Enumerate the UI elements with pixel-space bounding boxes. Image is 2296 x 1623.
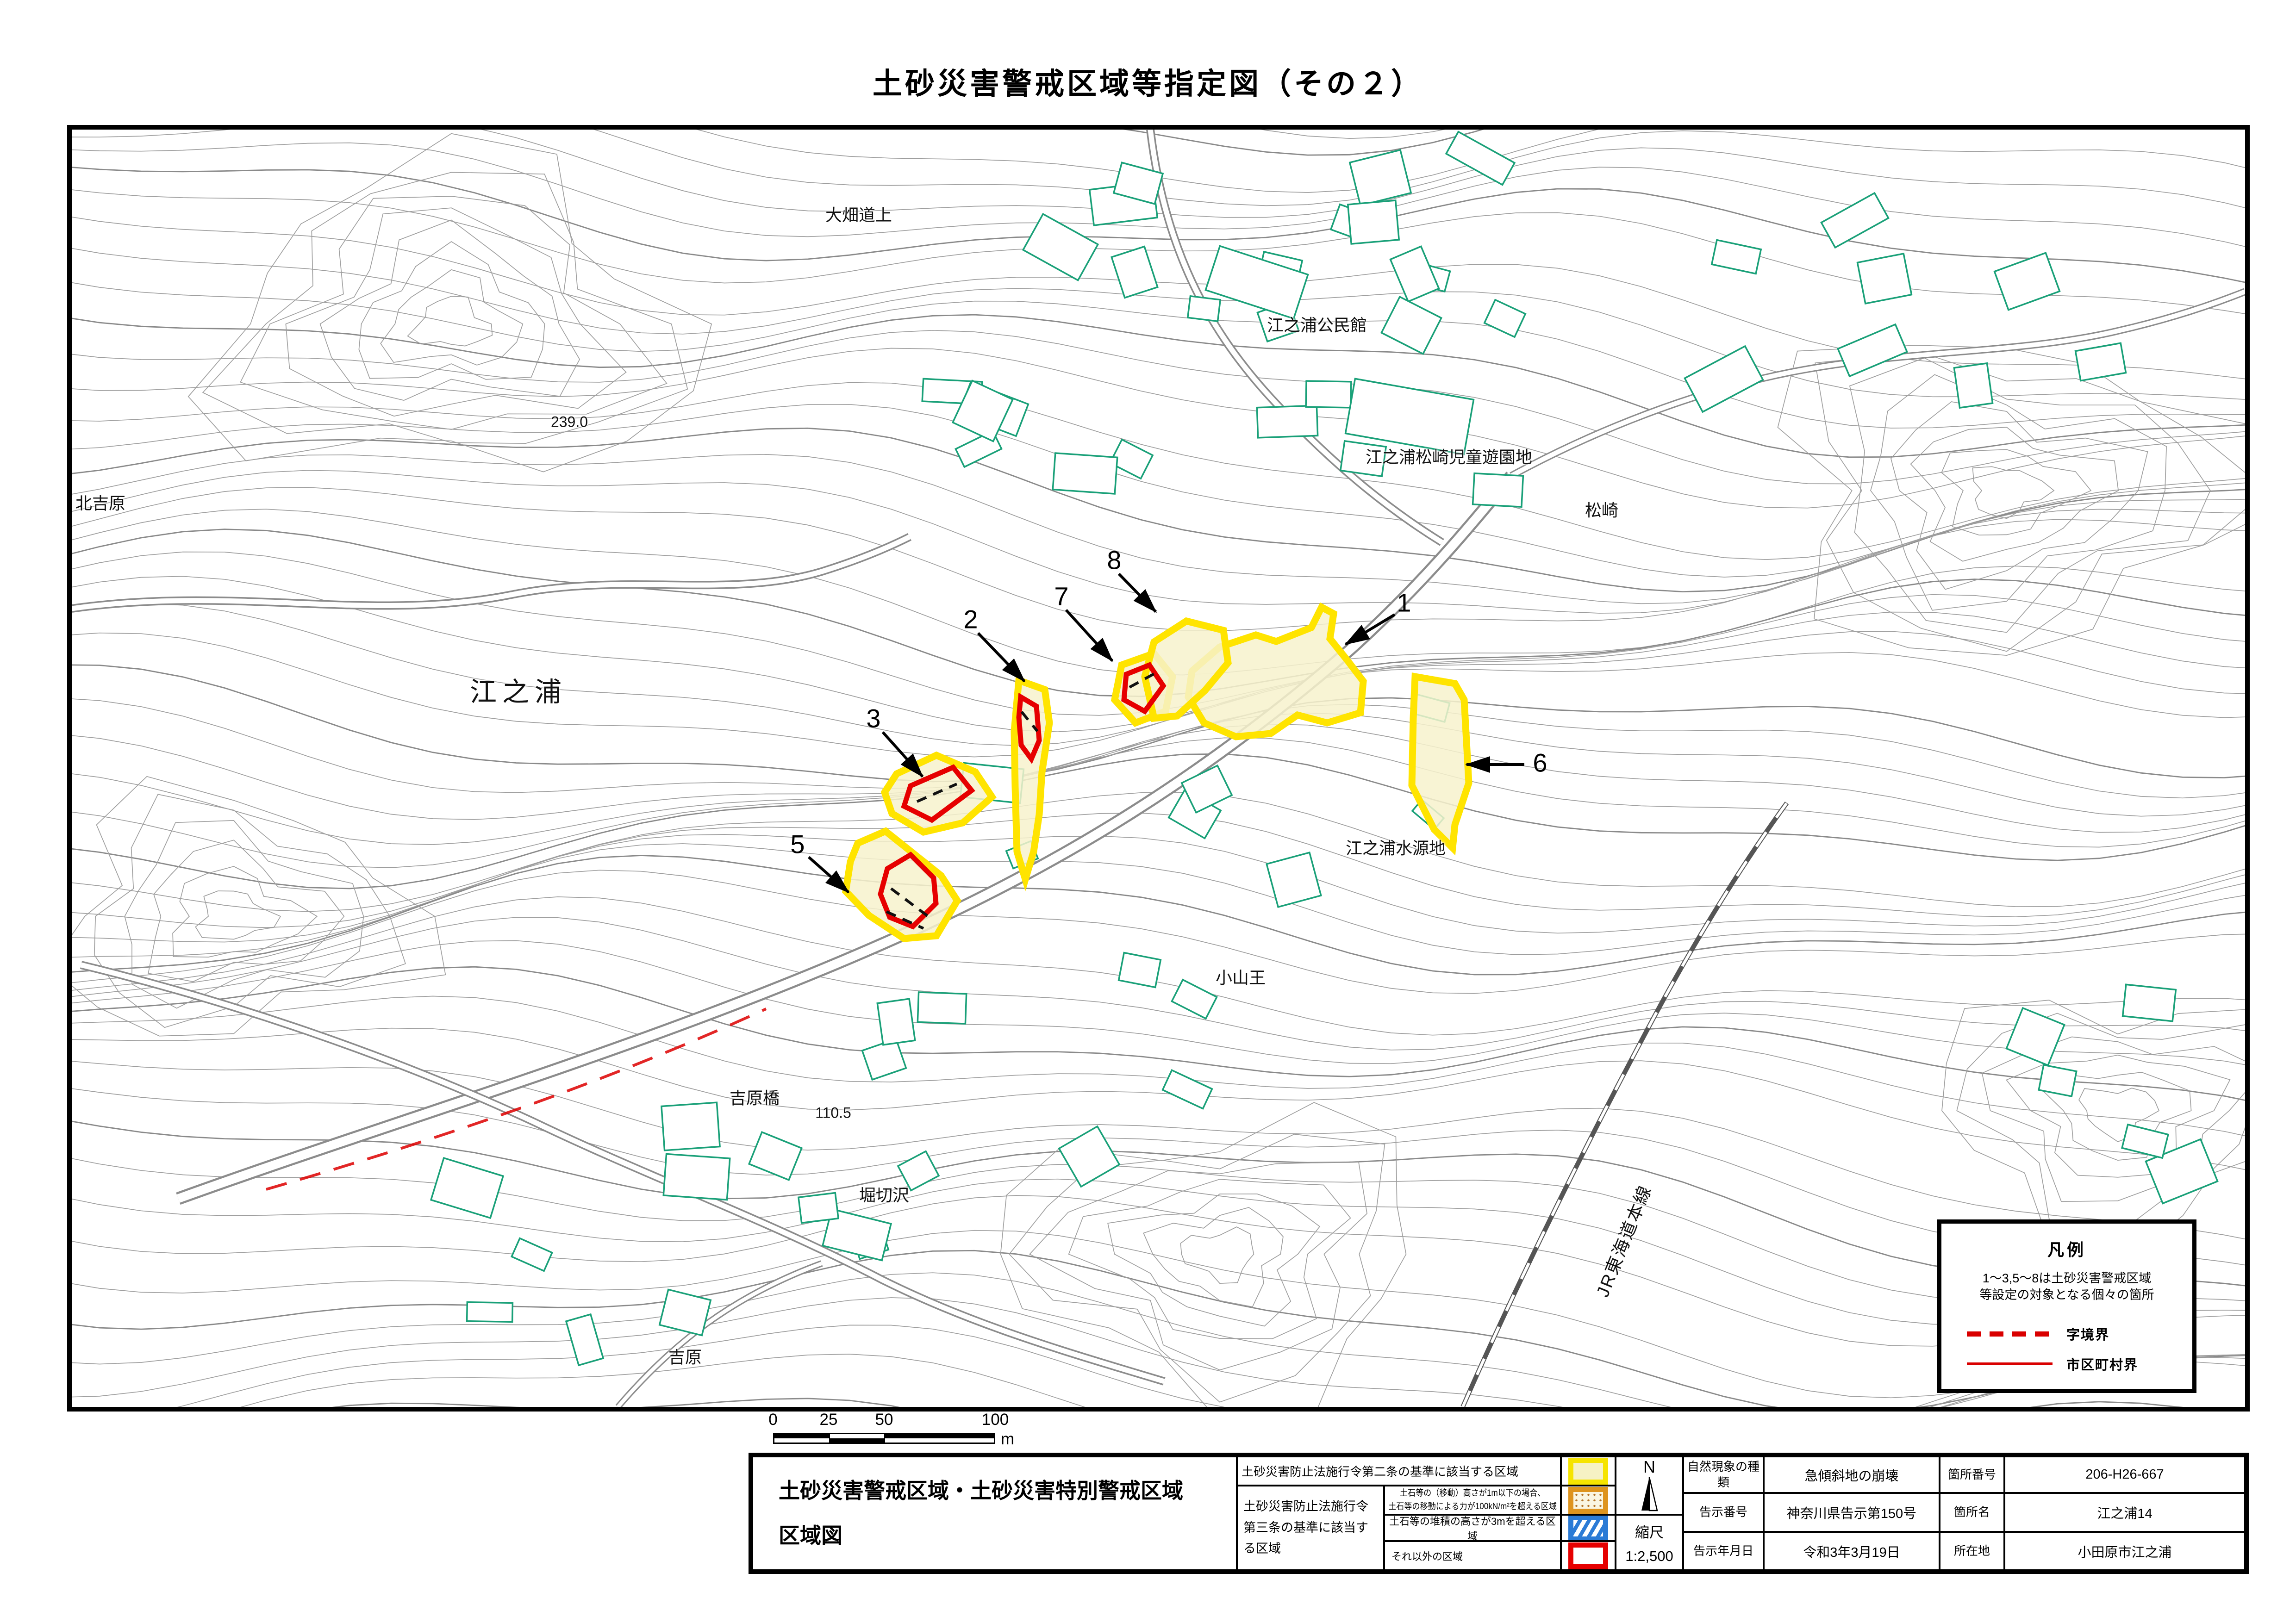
compass-n-label: N: [1643, 1459, 1655, 1475]
info-k2-r2-cell: 箇所名: [1940, 1493, 2004, 1532]
scale-value: 1:2,500: [1625, 1548, 1673, 1565]
blue-hatch-swatch: [1568, 1515, 1608, 1541]
scale-tick-0: 0: [768, 1411, 777, 1429]
zone-number-2: 2: [963, 604, 978, 634]
row4-desc-cell: それ以外の区域: [1384, 1541, 1561, 1570]
swatch-blue-cell: [1561, 1515, 1616, 1541]
info-k1-r3-cell: 告示年月日: [1683, 1532, 1764, 1570]
solid-red-line-sample: [1967, 1362, 2053, 1365]
scale-tick-25: 25: [820, 1411, 838, 1429]
legend-note-line1: 1～3,5～8は土砂災害警戒区域: [1941, 1270, 2192, 1287]
label-matsuzaki: 松崎: [1585, 497, 1618, 521]
label-horikirisawa: 堀切沢: [859, 1182, 909, 1206]
zone-number-1: 1: [1397, 588, 1411, 618]
row2-desc-line2: 土石等の移動による力が100kN/m²を超える区域: [1388, 1500, 1557, 1514]
law-article2-cell: 土砂災害防止法施行令第二条の基準に該当する区域: [1237, 1456, 1561, 1486]
info-k2-r2: 箇所名: [1954, 1505, 1990, 1520]
bottom-table: 土砂災害警戒区域・土砂災害特別警戒区域 区域図 土砂災害防止法施行令第二条の基準…: [749, 1453, 2249, 1574]
zone-number-7: 7: [1054, 581, 1068, 611]
law-article2-label: 土砂災害防止法施行令第二条の基準に該当する区域: [1242, 1462, 1518, 1480]
zone-number-6: 6: [1533, 748, 1547, 778]
label-jidou-yuuenchi: 江之浦松崎児童遊園地: [1366, 444, 1532, 468]
info-v1-r3-cell: 令和3年3月19日: [1764, 1532, 1940, 1570]
info-v1-r3: 令和3年3月19日: [1803, 1542, 1900, 1561]
label-koyamaou: 小山王: [1216, 964, 1266, 989]
legend-note-line2: 等設定の対象となる個々の箇所: [1941, 1287, 2192, 1303]
dashed-red-line-sample: [1967, 1331, 2053, 1337]
info-k1-r1: 自然現象の種類: [1684, 1459, 1763, 1491]
legend-row-municipal: 市区町村界: [1967, 1355, 2175, 1373]
municipal-boundary-label: 市区町村界: [2066, 1354, 2138, 1374]
label-yoshiwara: 吉原: [668, 1344, 702, 1368]
info-v2-r2-cell: 江之浦14: [2004, 1493, 2245, 1532]
info-v2-r3-cell: 小田原市江之浦: [2004, 1532, 2245, 1570]
row2-desc: 土石等の（移動）高さが1m以下の場合、 土石等の移動による力が100kN/m²を…: [1388, 1487, 1557, 1513]
yellow-zone-swatch: [1568, 1458, 1608, 1485]
info-v2-r1-cell: 206-H26-667: [2004, 1456, 2245, 1493]
compass-needle-icon: [1637, 1476, 1662, 1512]
info-k1-r2-cell: 告示番号: [1683, 1493, 1764, 1532]
law-article3-label: 土砂災害防止法施行令第三条の基準に該当する区域: [1238, 1496, 1383, 1560]
compass-cell: N: [1616, 1456, 1683, 1515]
info-v2-r2: 江之浦14: [2097, 1503, 2152, 1522]
row3-desc: 土石等の堆積の高さが3mを超える区域: [1385, 1515, 1560, 1541]
page: 土砂災害警戒区域等指定図（その２）: [0, 0, 2296, 1623]
row2-desc-cell: 土石等の（移動）高さが1m以下の場合、 土石等の移動による力が100kN/m²を…: [1384, 1486, 1561, 1515]
zone-number-8: 8: [1107, 545, 1121, 575]
railway-jr-tokaido: [1463, 803, 1787, 1407]
swatch-yellow-cell: [1561, 1456, 1616, 1486]
info-v2-r3: 小田原市江之浦: [2078, 1542, 2171, 1561]
label-kitayoshiwara: 北吉原: [75, 490, 125, 514]
info-k2-r3-cell: 所在地: [1940, 1532, 2004, 1570]
scale-tick-50: 50: [875, 1411, 893, 1429]
scale-bar: 0 25 50 100 m: [773, 1411, 1032, 1449]
info-v1-r1-cell: 急傾斜地の崩壊: [1764, 1456, 1940, 1493]
label-elevation-239: 239.0: [551, 414, 588, 431]
info-v1-r1: 急傾斜地の崩壊: [1804, 1465, 1898, 1485]
label-yoshiwarabashi: 吉原橋: [730, 1085, 780, 1109]
info-k2-r1-cell: 箇所番号: [1940, 1456, 2004, 1493]
label-obatamichiue: 大畑道上: [825, 202, 892, 226]
scale-segment-2: [829, 1434, 886, 1443]
zone-number-3: 3: [866, 703, 880, 734]
scale-bar-segments: [773, 1433, 995, 1444]
info-k2-r3: 所在地: [1954, 1543, 1990, 1559]
scale-segment-3: [885, 1434, 994, 1443]
zone-6-yellow: [1412, 677, 1469, 848]
legend-note: 1～3,5～8は土砂災害警戒区域 等設定の対象となる個々の箇所: [1941, 1270, 2192, 1304]
zone-number-5: 5: [790, 829, 805, 859]
label-enoura-kouminkan: 江之浦公民館: [1267, 312, 1367, 336]
scale-unit: m: [1001, 1430, 1014, 1449]
scale-segment-1: [774, 1434, 829, 1443]
label-elevation-110: 110.5: [815, 1105, 851, 1122]
legend-title: 凡例: [1941, 1237, 2192, 1261]
scale-tick-100: 100: [982, 1411, 1009, 1429]
contour-lines: [72, 130, 2245, 1407]
sheet-title: 土砂災害警戒区域・土砂災害特別警戒区域 区域図: [753, 1468, 1183, 1558]
sheet-title-cell: 土砂災害警戒区域・土砂災害特別警戒区域 区域図: [752, 1456, 1237, 1570]
info-k2-r1: 箇所番号: [1948, 1467, 1996, 1483]
legend-box: 凡例 1～3,5～8は土砂災害警戒区域 等設定の対象となる個々の箇所 字境界 市…: [1937, 1219, 2196, 1393]
scale-label: 縮尺: [1635, 1521, 1664, 1542]
swatch-red-cell: [1561, 1541, 1616, 1570]
label-enoura: 江之浦: [470, 670, 567, 709]
info-v1-r2: 神奈川県告示第150号: [1787, 1503, 1916, 1522]
info-v2-r1: 206-H26-667: [2085, 1467, 2164, 1482]
law-article3-cell: 土砂災害防止法施行令第三条の基準に該当する区域: [1237, 1486, 1384, 1570]
topographic-map: [72, 130, 2245, 1407]
sheet-title-line1: 土砂災害警戒区域・土砂災害特別警戒区域: [779, 1468, 1183, 1513]
label-enoura-suigenchi: 江之浦水源地: [1346, 835, 1446, 859]
info-k1-r1-cell: 自然現象の種類: [1683, 1456, 1764, 1493]
legend-row-aza: 字境界: [1967, 1325, 2175, 1343]
orange-dotted-swatch: [1568, 1487, 1608, 1514]
info-k1-r2: 告示番号: [1699, 1505, 1747, 1520]
swatch-orange-cell: [1561, 1486, 1616, 1515]
scale-cell: 縮尺 1:2,500: [1616, 1515, 1683, 1570]
page-title: 土砂災害警戒区域等指定図（その２）: [0, 60, 2296, 103]
row4-desc: それ以外の区域: [1391, 1548, 1463, 1563]
aza-boundary-label: 字境界: [2066, 1324, 2109, 1343]
info-k1-r3: 告示年月日: [1693, 1543, 1753, 1559]
row3-desc-cell: 土石等の堆積の高さが3mを超える区域: [1384, 1515, 1561, 1541]
red-outline-swatch: [1568, 1542, 1608, 1569]
map-frame: 大畑道上 江之浦公民館 江之浦松崎児童遊園地 松崎 239.0 北吉原 江之浦 …: [67, 125, 2250, 1412]
row2-desc-line1: 土石等の（移動）高さが1m以下の場合、: [1388, 1487, 1557, 1500]
info-v1-r2-cell: 神奈川県告示第150号: [1764, 1493, 1940, 1532]
sheet-title-line2: 区域図: [779, 1513, 1183, 1558]
